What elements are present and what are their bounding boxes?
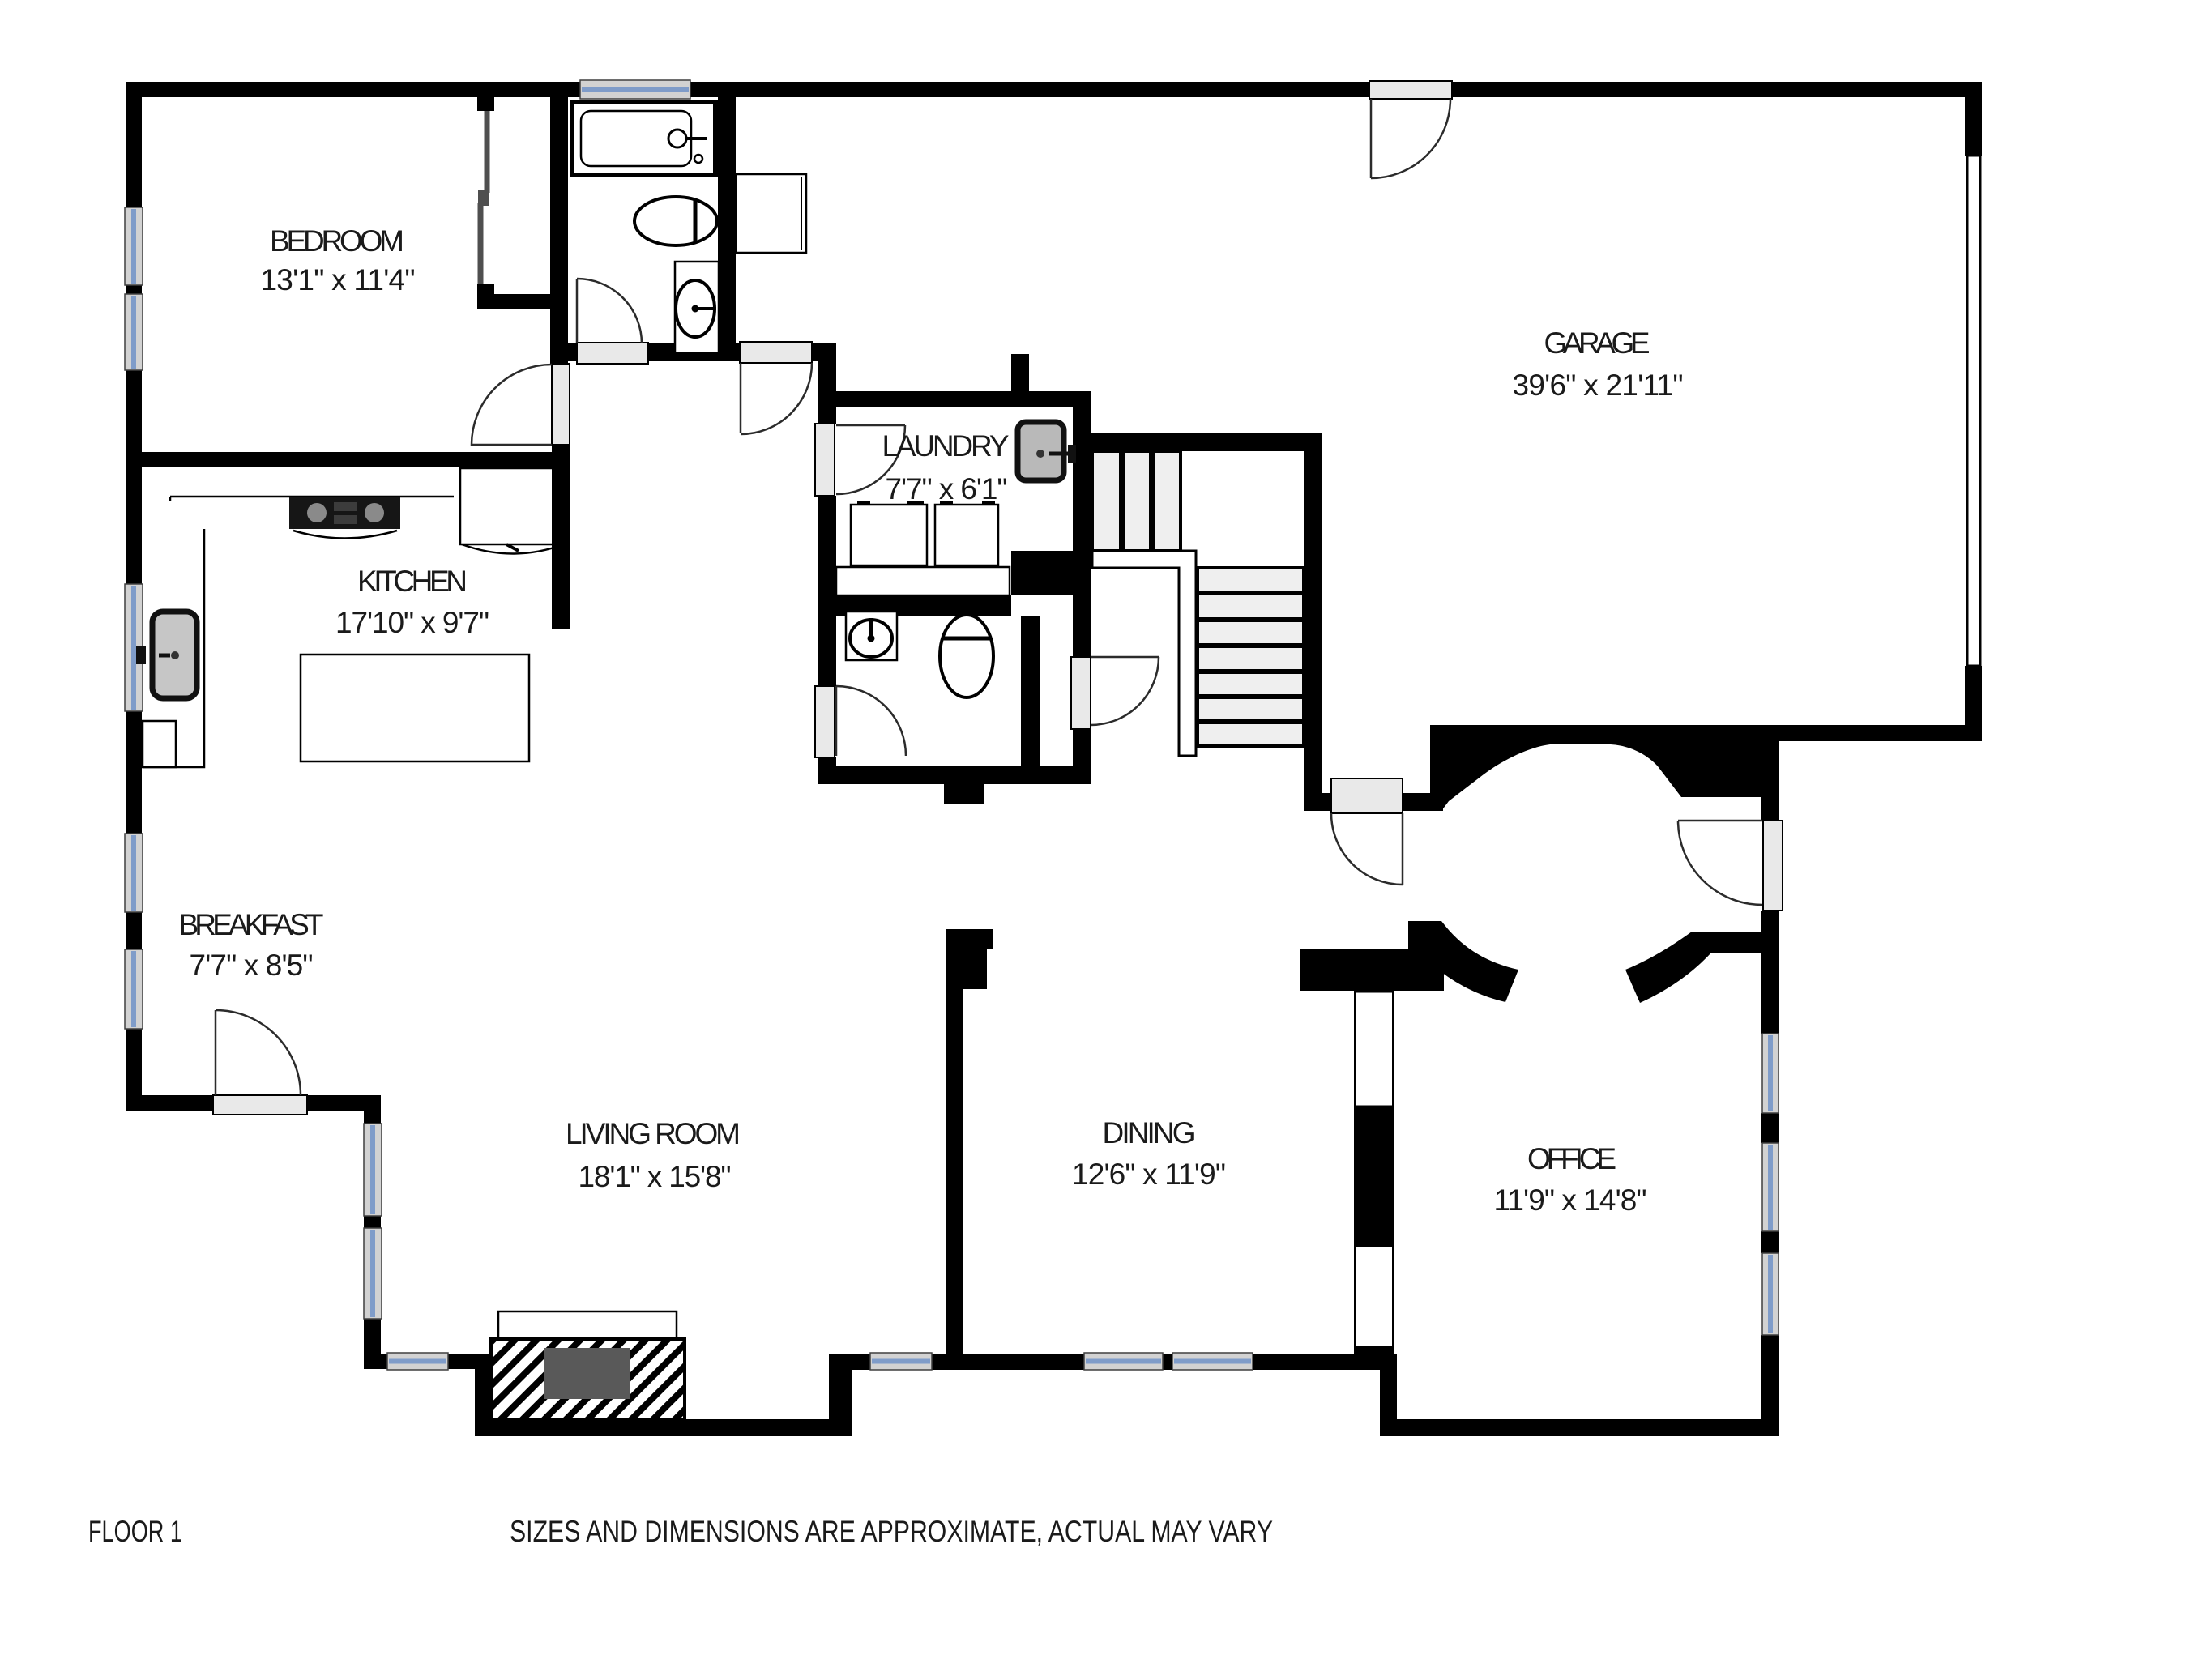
- svg-text:LAUNDRY: LAUNDRY: [882, 429, 1010, 463]
- svg-text:GARAGE: GARAGE: [1544, 326, 1650, 360]
- svg-text:18'1" x 15'8": 18'1" x 15'8": [579, 1160, 732, 1193]
- svg-text:FLOOR 1: FLOOR 1: [88, 1515, 182, 1548]
- svg-text:DINING: DINING: [1103, 1116, 1196, 1149]
- svg-text:17'10" x 9'7": 17'10" x 9'7": [335, 606, 489, 639]
- svg-text:BREAKFAST: BREAKFAST: [179, 908, 324, 941]
- svg-text:11'9" x 14'8": 11'9" x 14'8": [1494, 1183, 1647, 1217]
- svg-text:13'1" x 11'4": 13'1" x 11'4": [261, 263, 416, 296]
- svg-text:OFFICE: OFFICE: [1527, 1142, 1616, 1175]
- svg-text:7'7" x 8'5": 7'7" x 8'5": [190, 949, 314, 982]
- svg-text:SIZES AND DIMENSIONS ARE APPRO: SIZES AND DIMENSIONS ARE APPROXIMATE, AC…: [510, 1515, 1273, 1548]
- svg-text:39'6" x 21'11": 39'6" x 21'11": [1513, 369, 1684, 402]
- svg-text:12'6" x 11'9": 12'6" x 11'9": [1072, 1158, 1226, 1191]
- svg-text:KITCHEN: KITCHEN: [357, 565, 468, 598]
- svg-text:BEDROOM: BEDROOM: [270, 224, 404, 258]
- svg-text:7'7" x 6'1": 7'7" x 6'1": [886, 472, 1008, 505]
- svg-text:LIVING ROOM: LIVING ROOM: [566, 1117, 741, 1150]
